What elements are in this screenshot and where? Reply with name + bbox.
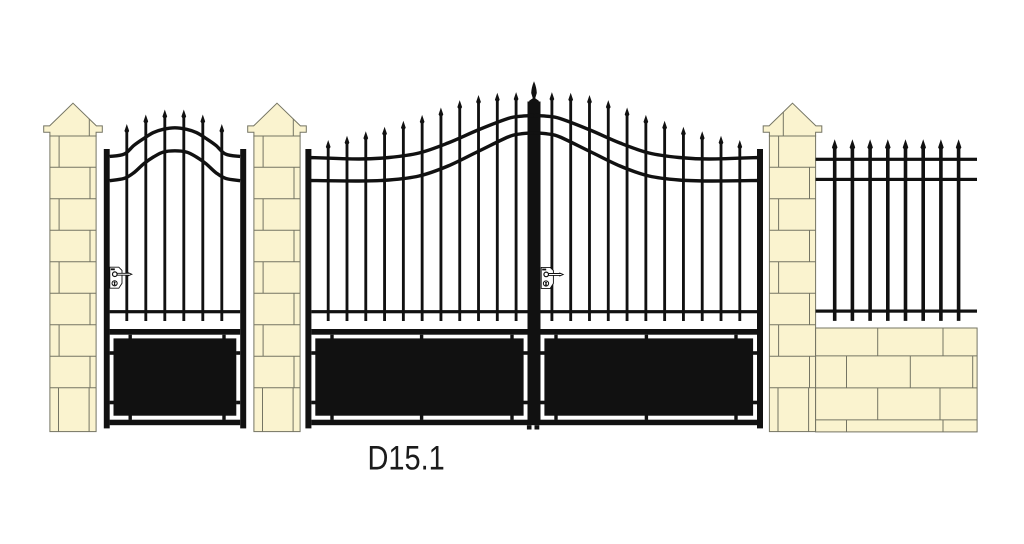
svg-text:D15.1: D15.1	[368, 438, 445, 477]
